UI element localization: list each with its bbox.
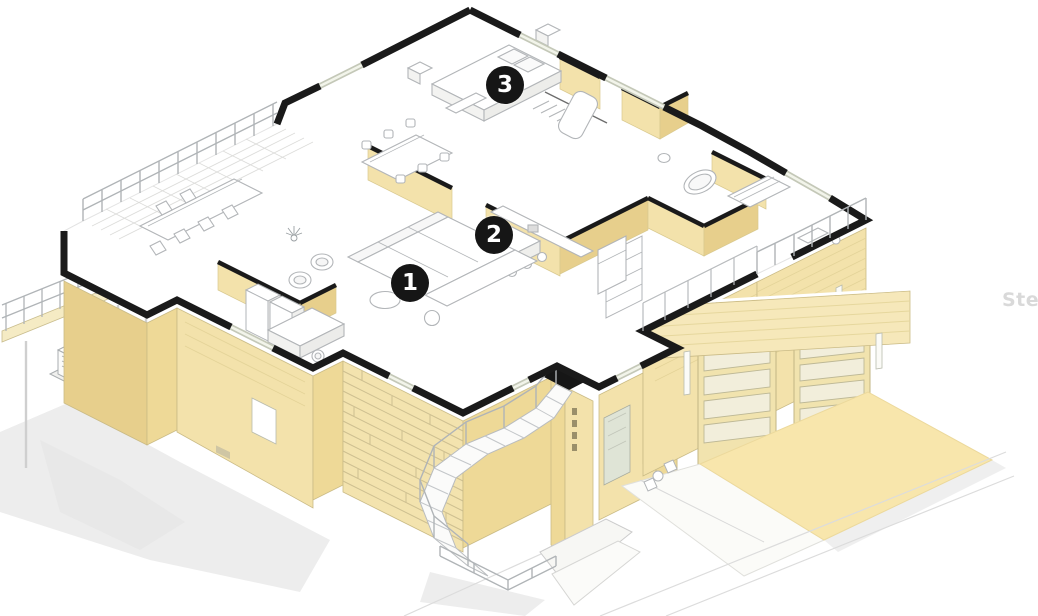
room-marker-1[interactable]: 1	[391, 264, 429, 302]
room-marker-3[interactable]: 3	[486, 66, 524, 104]
watermark: Stel	[1002, 289, 1038, 311]
floorplan-canvas: 1 2 3 Stel	[0, 0, 1038, 616]
room-marker-2[interactable]: 2	[475, 216, 513, 254]
